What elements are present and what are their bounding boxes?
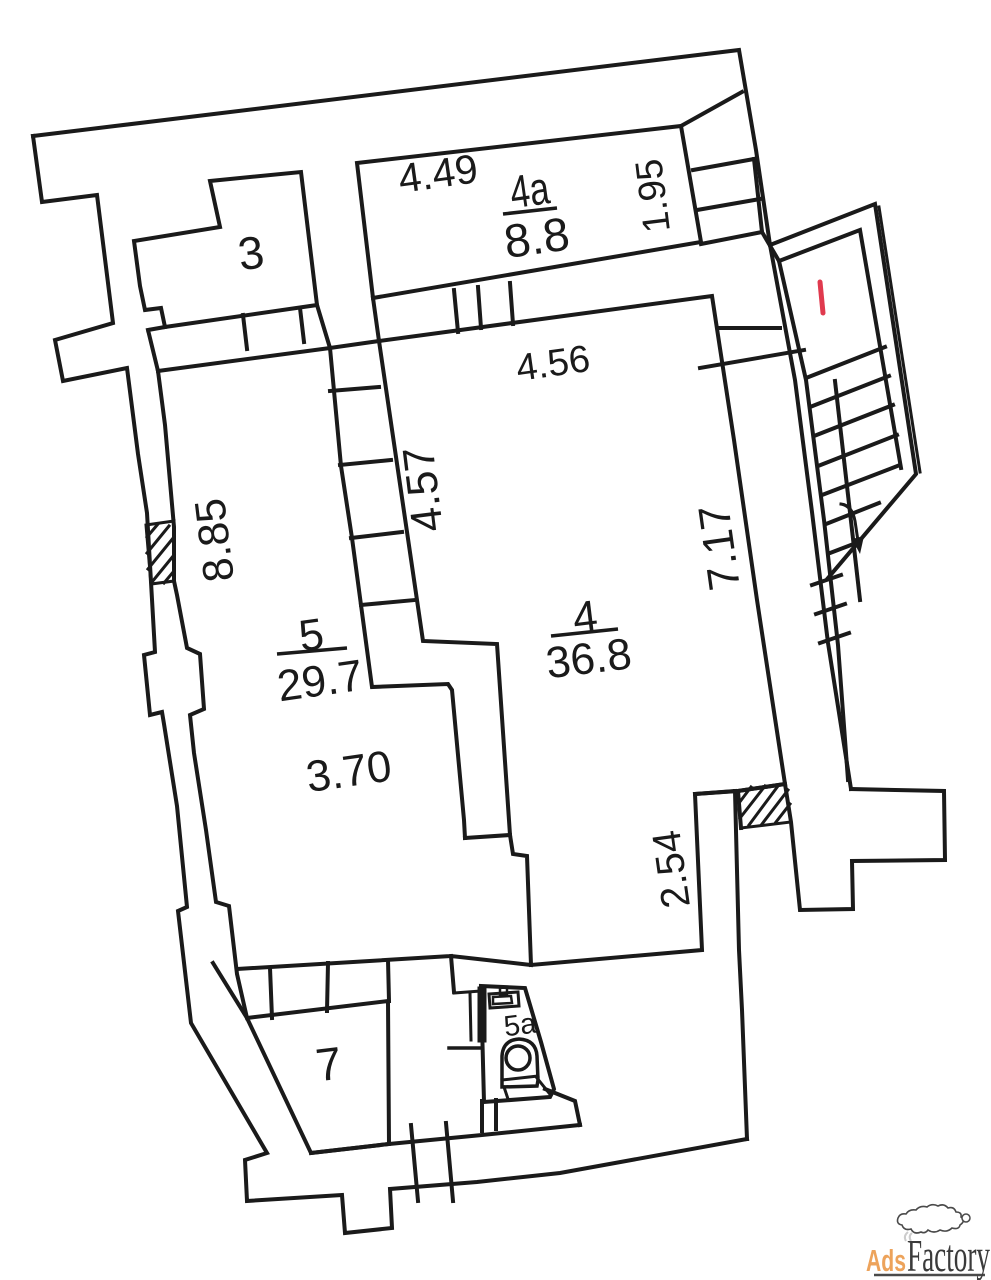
svg-text:4.57: 4.57 <box>394 444 453 535</box>
svg-text:8.8: 8.8 <box>501 206 573 268</box>
svg-text:36.8: 36.8 <box>543 629 634 688</box>
svg-text:Ads: Ads <box>866 1243 906 1278</box>
svg-text:Factory: Factory <box>907 1231 990 1280</box>
svg-text:1.95: 1.95 <box>628 156 679 235</box>
svg-text:8.85: 8.85 <box>186 496 244 585</box>
svg-text:5a: 5a <box>502 1008 539 1044</box>
